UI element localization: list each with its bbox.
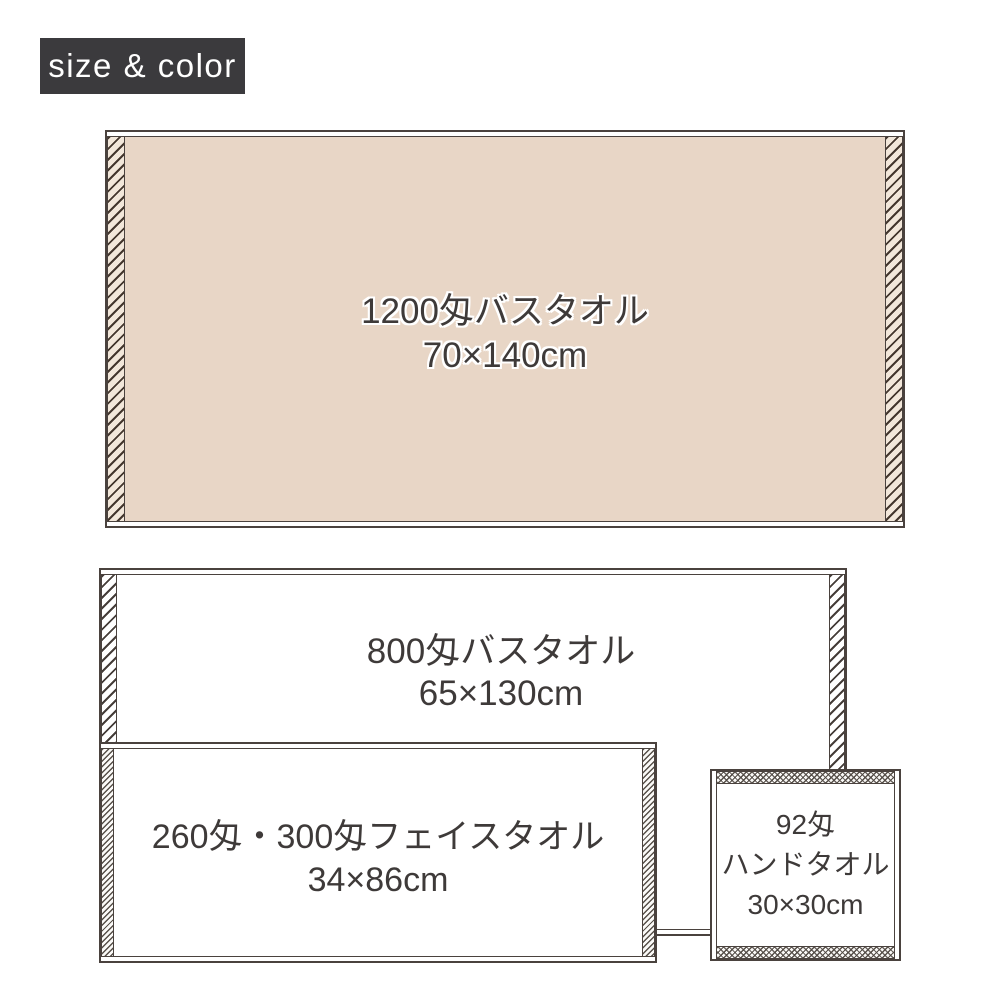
towel-dimensions: 70×140cm (125, 334, 885, 378)
towel-face-label: 260匁・300匁フェイスタオル 34×86cm (114, 816, 642, 902)
towel-name-line2: ハンドタオル (717, 845, 894, 885)
towel-face-fill: 260匁・300匁フェイスタオル 34×86cm (114, 749, 642, 956)
towel-size-diagram: size & color 1200匁バスタオル 70×140cm 800匁バスタ… (0, 0, 1000, 1000)
selvedge-hatch-top (717, 772, 894, 784)
selvedge-hatch-left (102, 749, 114, 956)
towel-hand-label: 92匁 ハンドタオル 30×30cm (717, 805, 894, 925)
towel-dimensions: 65×130cm (173, 673, 829, 715)
towel-hand-body: 92匁 ハンドタオル 30×30cm (716, 771, 895, 959)
towel-bath-1200: 1200匁バスタオル 70×140cm (105, 130, 905, 528)
towel-name: 1200匁バスタオル (125, 290, 885, 334)
selvedge-hatch-left (108, 137, 125, 521)
towel-face-body: 260匁・300匁フェイスタオル 34×86cm (101, 748, 655, 957)
towel-bath-1200-body: 1200匁バスタオル 70×140cm (107, 136, 903, 522)
towel-hand-92: 92匁 ハンドタオル 30×30cm (710, 769, 901, 961)
towel-hand-fill: 92匁 ハンドタオル 30×30cm (717, 784, 894, 946)
towel-bath-1200-label: 1200匁バスタオル 70×140cm (125, 290, 885, 378)
towel-dimensions: 34×86cm (114, 859, 642, 902)
towel-dimensions: 30×30cm (717, 885, 894, 925)
towel-bath-1200-fill: 1200匁バスタオル 70×140cm (125, 137, 885, 521)
towel-name: 92匁 (717, 805, 894, 845)
section-badge: size & color (40, 38, 245, 94)
selvedge-hatch-right (885, 137, 902, 521)
selvedge-hatch-right (642, 749, 654, 956)
towel-face-260-300: 260匁・300匁フェイスタオル 34×86cm (99, 742, 657, 963)
towel-bath-800-label: 800匁バスタオル 65×130cm (173, 631, 829, 715)
towel-name: 260匁・300匁フェイスタオル (114, 816, 642, 859)
section-badge-label: size & color (48, 47, 237, 85)
selvedge-hatch-bottom (717, 946, 894, 958)
towel-name: 800匁バスタオル (173, 631, 829, 673)
